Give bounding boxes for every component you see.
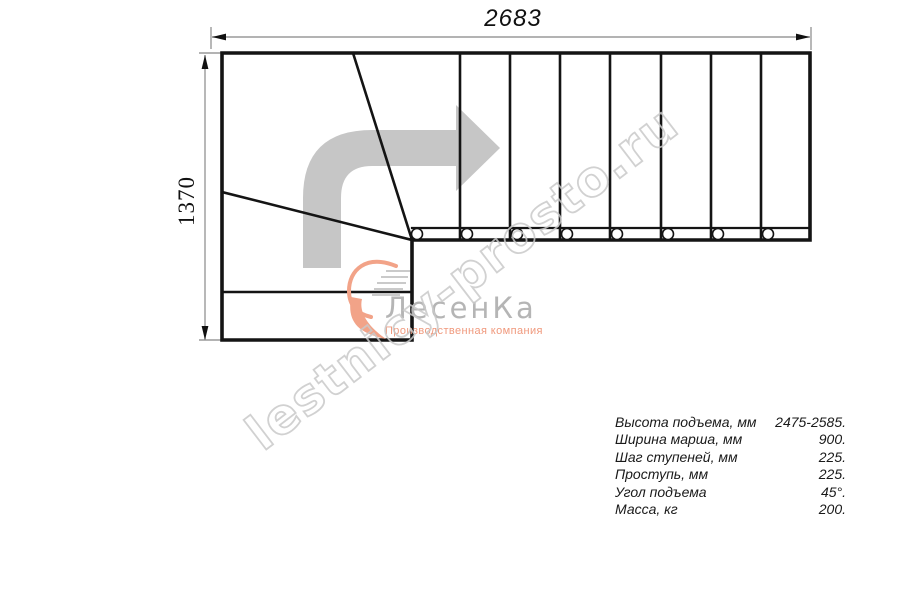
riser-lines (460, 53, 761, 240)
direction-arrow-icon (303, 105, 500, 268)
spec-table: Высота подъема, мм 2475-2585. Ширина мар… (615, 414, 846, 518)
baluster-circles (412, 229, 774, 240)
spec-row: Масса, кг 200. (615, 501, 846, 518)
spec-row: Ширина марша, мм 900. (615, 431, 846, 448)
spec-row: Угол подъема 45°. (615, 484, 846, 501)
spec-row: Проступь, мм 225. (615, 466, 846, 483)
staircase-drawing-canvas: 2683 1370 ЛесенКа Производственная компа… (0, 0, 900, 600)
spec-value: 200. (819, 501, 846, 518)
spec-label: Масса, кг (615, 501, 678, 518)
spec-value: 45°. (821, 484, 846, 501)
spec-label: Высота подъема, мм (615, 414, 757, 431)
left-dimension (199, 53, 222, 340)
spec-label: Угол подъема (615, 484, 707, 501)
spec-row: Высота подъема, мм 2475-2585. (615, 414, 846, 431)
spec-value: 900. (819, 431, 846, 448)
logo-tagline: Производственная компания (385, 325, 605, 337)
spec-value: 2475-2585. (775, 414, 846, 431)
spec-label: Проступь, мм (615, 466, 708, 483)
spec-label: Шаг ступеней, мм (615, 449, 738, 466)
spec-value: 225. (819, 466, 846, 483)
left-dimension-value: 1370 (174, 151, 200, 251)
logo-company-name: ЛесенКа (385, 291, 605, 325)
spec-label: Ширина марша, мм (615, 431, 742, 448)
spec-value: 225. (819, 449, 846, 466)
spec-row: Шаг ступеней, мм 225. (615, 449, 846, 466)
top-dimension-value: 2683 (443, 5, 583, 33)
